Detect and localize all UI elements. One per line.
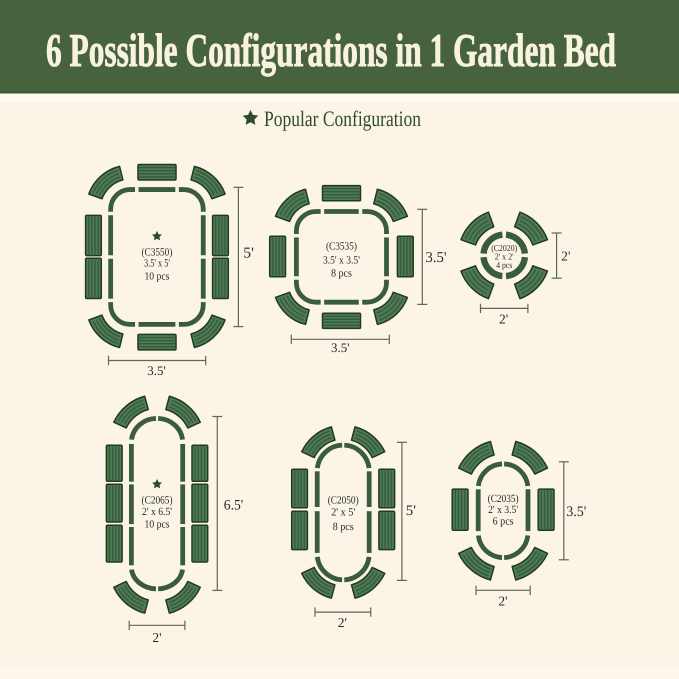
svg-text:2': 2' <box>498 593 507 608</box>
svg-text:3.5' x 3.5': 3.5' x 3.5' <box>323 255 360 267</box>
svg-text:3.5': 3.5' <box>426 250 447 266</box>
svg-text:2': 2' <box>338 615 347 630</box>
svg-text:6 pcs: 6 pcs <box>493 516 514 528</box>
svg-text:5': 5' <box>406 503 416 519</box>
svg-text:8 pcs: 8 pcs <box>331 268 352 280</box>
svg-text:3.5': 3.5' <box>566 504 586 520</box>
svg-text:4 pcs: 4 pcs <box>496 260 512 270</box>
svg-text:2' x 6.5': 2' x 6.5' <box>142 506 172 518</box>
svg-text:10 pcs: 10 pcs <box>144 271 169 283</box>
svg-text:2' x 5': 2' x 5' <box>331 507 355 519</box>
svg-text:6 Possible Configurations in 1: 6 Possible Configurations in 1 Garden Be… <box>46 25 616 77</box>
svg-text:2' x 3.5': 2' x 3.5' <box>488 504 518 516</box>
svg-text:(C2065): (C2065) <box>142 495 173 507</box>
svg-text:(C3550): (C3550) <box>141 247 172 259</box>
svg-text:3.5': 3.5' <box>147 363 166 378</box>
svg-text:5': 5' <box>243 246 254 262</box>
svg-text:8 pcs: 8 pcs <box>333 521 354 533</box>
svg-text:2': 2' <box>152 630 161 645</box>
svg-text:2': 2' <box>499 312 508 327</box>
svg-text:3.5': 3.5' <box>331 340 350 355</box>
svg-text:10 pcs: 10 pcs <box>145 519 170 531</box>
svg-text:(C3535): (C3535) <box>326 241 357 253</box>
svg-text:2': 2' <box>561 249 570 264</box>
svg-text:(C2050): (C2050) <box>328 495 359 507</box>
svg-text:Popular Configuration: Popular Configuration <box>264 106 421 131</box>
svg-text:3.5' x 5': 3.5' x 5' <box>144 258 170 270</box>
svg-text:6.5': 6.5' <box>224 497 244 513</box>
